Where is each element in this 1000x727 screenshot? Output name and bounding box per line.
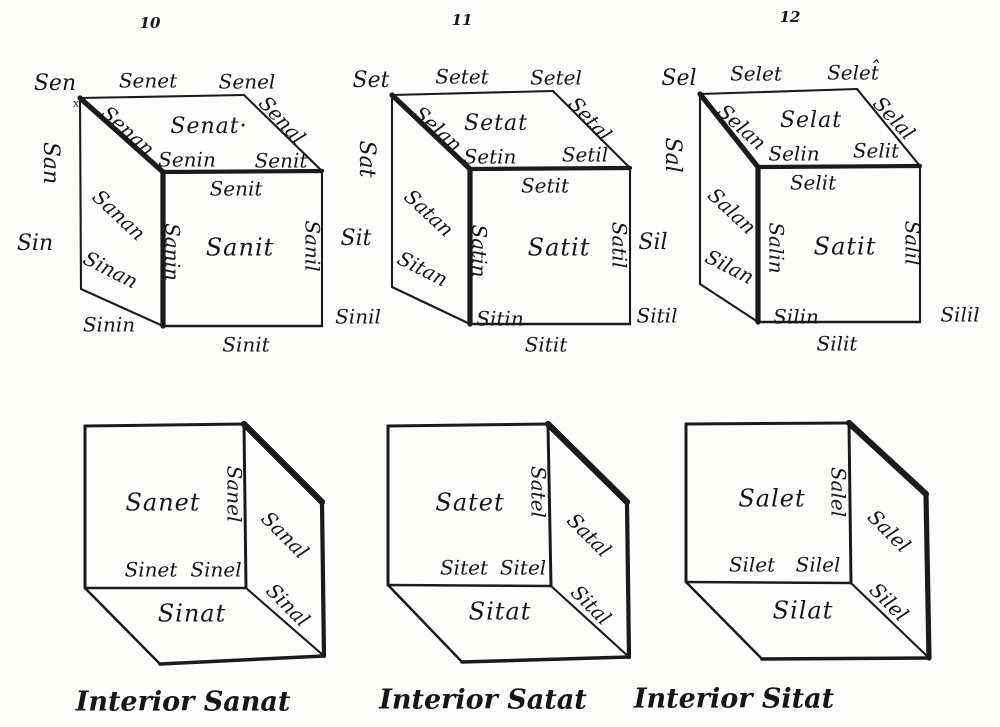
c3-label-corner-front-top-left: Selin xyxy=(768,142,819,166)
i1-top-right-diagonal-line xyxy=(244,424,322,502)
i3-outer-bottom-line xyxy=(762,658,929,659)
c2-label-corner-front-bottom-left: Sitin xyxy=(476,307,523,331)
c1-label-face-front: Sanit xyxy=(206,234,275,262)
c3-label-edge-left-back: Sal xyxy=(660,137,685,172)
c2-label-corner-front-top-right: Setil xyxy=(562,143,608,167)
c1-label-corner-front-bottom-left: Sinin xyxy=(83,313,135,337)
i1-label-face-right: Sanal xyxy=(256,506,313,563)
c1-corner-x-mark: x xyxy=(73,99,79,110)
figure-number-3: 12 xyxy=(780,8,801,26)
c2-label-face-top: Setat xyxy=(464,111,528,136)
i3-label-face-bottom: Silat xyxy=(773,597,834,625)
i1-label-face-front: Sanet xyxy=(125,489,200,517)
i1-label-edge-front-right: Sanel xyxy=(223,466,247,523)
c1-label-face-top: Senat· xyxy=(170,114,247,139)
i3-top-right-diagonal-line xyxy=(849,423,926,494)
c1-label-edge-front-bottom: Sinit xyxy=(222,333,270,357)
c3-label-face-top: Selat xyxy=(780,108,842,133)
i3-label-face-right: Salel xyxy=(863,505,916,558)
c1-edge-left-back-line xyxy=(80,98,81,289)
c3-label-edge-back-top: Selet xyxy=(730,62,783,86)
c3-edge-back-top-line xyxy=(700,89,857,94)
i3-front-top-line xyxy=(686,423,849,424)
c1-label-corner-front-top-left: Senin xyxy=(158,148,216,172)
c1-label-edge-front-right: Sanil xyxy=(301,220,325,271)
i2-top-right-diagonal-line xyxy=(548,424,627,502)
c2-edge-bottom-left-line xyxy=(392,287,470,324)
c3-label-edge-bottom-left: Silan xyxy=(701,244,758,289)
c2-label-edge-front-left: Satin xyxy=(468,225,492,278)
c2-label-corner-front-bottom-right: Sitil xyxy=(637,304,678,328)
c2-label-corner-front-top-left: Setin xyxy=(464,145,517,169)
c3-label-face-front: Satit xyxy=(814,233,877,261)
i3-label-edge-front-bottom-right: Silel xyxy=(796,553,841,577)
c2-edge-back-top-line xyxy=(392,91,553,95)
diagram-canvas: 10 11 12 Sen x Senet Senel San Senan Sen… xyxy=(0,0,1000,727)
c2-label-corner-back-top-right: Setel xyxy=(530,66,582,90)
c1-edge-back-top-line xyxy=(80,95,244,98)
c2-label-edge-top-left: Selan xyxy=(409,101,467,157)
i2-label-edge-front-bottom-right: Sitel xyxy=(500,556,546,580)
i1-front-top-line xyxy=(85,424,244,426)
c2-label-corner-back-bottom-left: Sit xyxy=(341,226,372,251)
c3-label-edge-front-top: Selit xyxy=(790,171,837,195)
i1-outer-bottom-line xyxy=(160,656,324,664)
cube-nomenclature-plate: 10 11 12 Sen x Senet Senel San Senan Sen… xyxy=(0,0,1000,727)
figure-number-2: 11 xyxy=(452,11,473,29)
i1-label-edge-front-bottom-left: Sinet xyxy=(125,558,179,582)
c3-label-edge-front-bottom: Silit xyxy=(817,332,859,356)
c3-label-face-left: Salan xyxy=(703,183,761,239)
c3-label-corner-front-bottom-left: Silin xyxy=(773,305,819,329)
c1-label-corner-front-bottom-right: Sinil xyxy=(335,305,381,329)
c1-label-face-left: Sanan xyxy=(88,185,151,246)
c1-label-edge-front-top: Senit xyxy=(210,177,264,201)
c1-label-edge-top-left: Senan xyxy=(96,101,159,161)
interior-cube-2: Satet Satel Satal Sitet Sitel Sital Sita… xyxy=(378,424,629,716)
c2-label-corner-back-top-left: Set xyxy=(353,68,390,93)
c2-label-edge-top-right: Setal xyxy=(564,92,617,146)
c2-label-face-left: Satan xyxy=(399,184,458,241)
i2-label-face-bottom: Sitat xyxy=(469,598,532,626)
c3-label-corner-front-top-right: Selit xyxy=(853,139,900,163)
c3-label-corner-front-bottom-right: Silil xyxy=(940,303,979,327)
i3-label-face-front: Salet xyxy=(738,485,805,513)
i2-outer-right-line xyxy=(627,502,629,657)
c3-label-edge-front-left: Salin xyxy=(765,222,789,273)
c1-label-corner-back-top-left: Sen xyxy=(34,71,76,96)
i3-outer-right-line xyxy=(926,494,929,658)
c2-label-edge-front-top: Setit xyxy=(521,174,570,198)
figure-number-1: 10 xyxy=(140,14,161,32)
i2-label-face-front: Satet xyxy=(435,489,504,517)
i2-caption: Interior Satat xyxy=(378,685,587,716)
i3-label-edge-front-bottom-left: Silet xyxy=(729,553,776,577)
interior-cube-1: Sanet Sanel Sanal Sinet Sinel Sinal Sina… xyxy=(75,424,324,718)
interior-cube-3: Salet Salel Salel Silet Silel Silel Sila… xyxy=(633,423,929,715)
c1-label-edge-left-back: San xyxy=(38,142,63,184)
c2-label-face-front: Satit xyxy=(528,234,591,262)
i2-label-face-right: Satal xyxy=(562,508,616,562)
c3-edge-front-top-line xyxy=(758,166,920,167)
i1-label-edge-front-bottom-right: Sinel xyxy=(190,558,241,582)
i2-front-top-line xyxy=(388,424,548,426)
exterior-cube-2: Set Setet Setel Sat Selan Setat Setal Se… xyxy=(341,65,678,357)
i1-caption: Interior Sanat xyxy=(75,687,291,718)
c1-label-corner-back-bottom-left: Sin xyxy=(17,231,53,256)
c3-label-corner-back-top-right: Selet̂ xyxy=(827,58,880,84)
exterior-cube-3: Sel Selet Selet̂ Sal Selan Selat Selal S… xyxy=(638,58,979,355)
c1-label-corner-back-top-right: Senel xyxy=(219,70,276,94)
c2-label-edge-front-bottom: Sitit xyxy=(525,333,569,357)
c2-label-edge-bottom-left: Sitan xyxy=(394,246,452,291)
c2-label-edge-front-right: Satil xyxy=(608,222,632,268)
i2-front-bottom-line xyxy=(388,585,551,586)
i2-outer-bottom-line xyxy=(462,657,629,662)
c2-label-edge-left-back: Sat xyxy=(354,140,379,177)
c1-label-corner-front-top-right: Senit xyxy=(255,149,309,173)
exterior-cube-1: Sen x Senet Senel San Senan Senat· Senal… xyxy=(17,69,381,357)
c3-edge-bottom-left-line xyxy=(700,284,758,322)
c1-label-edge-bottom-left: Sinan xyxy=(79,246,141,294)
i3-front-bottom-line xyxy=(686,582,851,583)
c1-label-edge-top-right: Senal xyxy=(254,91,310,149)
c3-label-edge-top-right: Selal xyxy=(868,91,920,144)
c1-label-edge-back-top: Senet xyxy=(119,69,178,93)
i1-bottom-left-diagonal-line xyxy=(85,588,160,664)
i3-caption: Interior Sitat xyxy=(633,684,835,715)
c3-label-edge-front-right: Salil xyxy=(901,221,925,266)
i3-label-edge-front-right: Salel xyxy=(827,467,851,517)
c3-label-corner-back-bottom-left: Sil xyxy=(638,230,667,255)
i1-label-face-bottom: Sinat xyxy=(158,600,227,628)
i2-label-edge-front-bottom-left: Sitet xyxy=(440,556,489,580)
i2-label-edge-front-right: Satel xyxy=(527,466,551,518)
i2-bottom-left-diagonal-line xyxy=(388,585,462,662)
c1-label-edge-front-left: Sanin xyxy=(161,223,185,281)
i1-outer-right-line xyxy=(322,502,324,656)
i3-bottom-left-diagonal-line xyxy=(686,582,762,659)
c2-label-edge-back-top: Setet xyxy=(435,65,489,89)
c3-label-corner-back-top-left: Sel xyxy=(661,66,696,91)
